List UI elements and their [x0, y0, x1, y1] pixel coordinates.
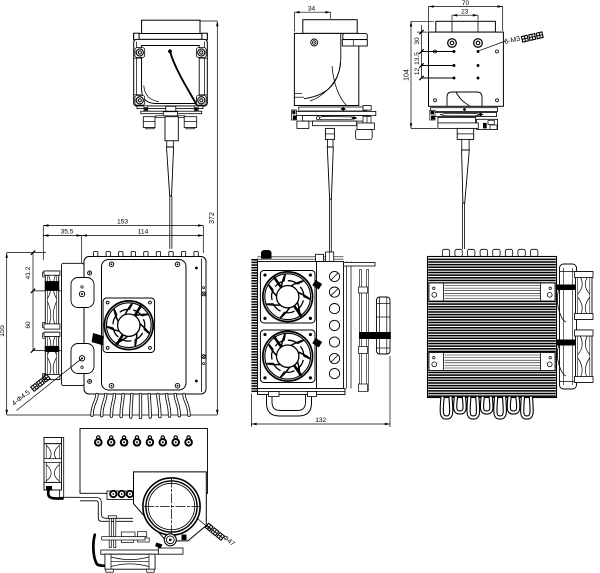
svg-text:30: 30 [414, 37, 421, 45]
svg-text:34: 34 [308, 5, 316, 12]
svg-text:23: 23 [461, 8, 469, 15]
svg-text:114: 114 [138, 228, 149, 235]
svg-text:12: 12 [414, 68, 421, 76]
svg-text:70: 70 [462, 0, 470, 7]
svg-text:132: 132 [315, 417, 326, 424]
svg-text:35.5: 35.5 [61, 228, 74, 235]
svg-text:155: 155 [0, 325, 6, 337]
svg-text:372: 372 [209, 212, 216, 224]
svg-text:41.2: 41.2 [25, 266, 32, 279]
svg-text:13.5: 13.5 [414, 52, 421, 65]
svg-text:104: 104 [403, 69, 410, 81]
svg-text:60: 60 [25, 321, 32, 329]
svg-text:153: 153 [117, 218, 128, 225]
